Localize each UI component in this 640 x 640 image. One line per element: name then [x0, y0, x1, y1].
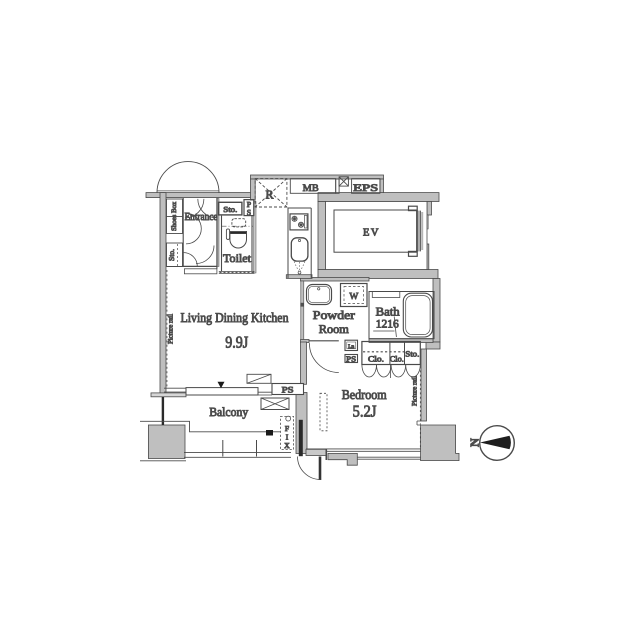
svg-text:9.9J: 9.9J [225, 333, 248, 352]
svg-text:Toilet: Toilet [223, 253, 252, 265]
svg-text:Picture rail: Picture rail [167, 314, 174, 344]
svg-text:Sto.: Sto. [223, 205, 237, 214]
svg-text:Clo.: Clo. [368, 355, 384, 364]
svg-text:X: X [284, 441, 290, 450]
svg-text:PS: PS [346, 354, 356, 363]
svg-text:Entrance: Entrance [185, 211, 218, 223]
svg-text:Ln: Ln [348, 344, 354, 350]
svg-text:R: R [265, 188, 273, 202]
svg-text:Sto.: Sto. [167, 249, 176, 261]
svg-text:Picture rail: Picture rail [412, 376, 419, 406]
svg-text:S: S [247, 208, 251, 217]
svg-text:Living Dining Kitchen: Living Dining Kitchen [181, 310, 289, 325]
svg-text:Balcony: Balcony [209, 405, 249, 419]
svg-text:MB: MB [303, 183, 319, 194]
svg-text:W: W [349, 292, 358, 302]
svg-text:5.2J: 5.2J [353, 402, 378, 421]
svg-text:Bedroom: Bedroom [342, 387, 387, 402]
svg-text:Room: Room [319, 322, 350, 336]
svg-text:Clo.: Clo. [390, 355, 404, 364]
svg-text:EV: EV [363, 228, 380, 239]
svg-text:Bath: Bath [376, 304, 400, 318]
svg-text:N: N [468, 438, 482, 447]
svg-text:Sto.: Sto. [405, 350, 419, 359]
svg-text:Powder: Powder [313, 308, 355, 322]
svg-text:EPS: EPS [353, 183, 378, 194]
svg-text:PS: PS [282, 384, 294, 394]
svg-text:Shoes Box: Shoes Box [171, 201, 178, 231]
